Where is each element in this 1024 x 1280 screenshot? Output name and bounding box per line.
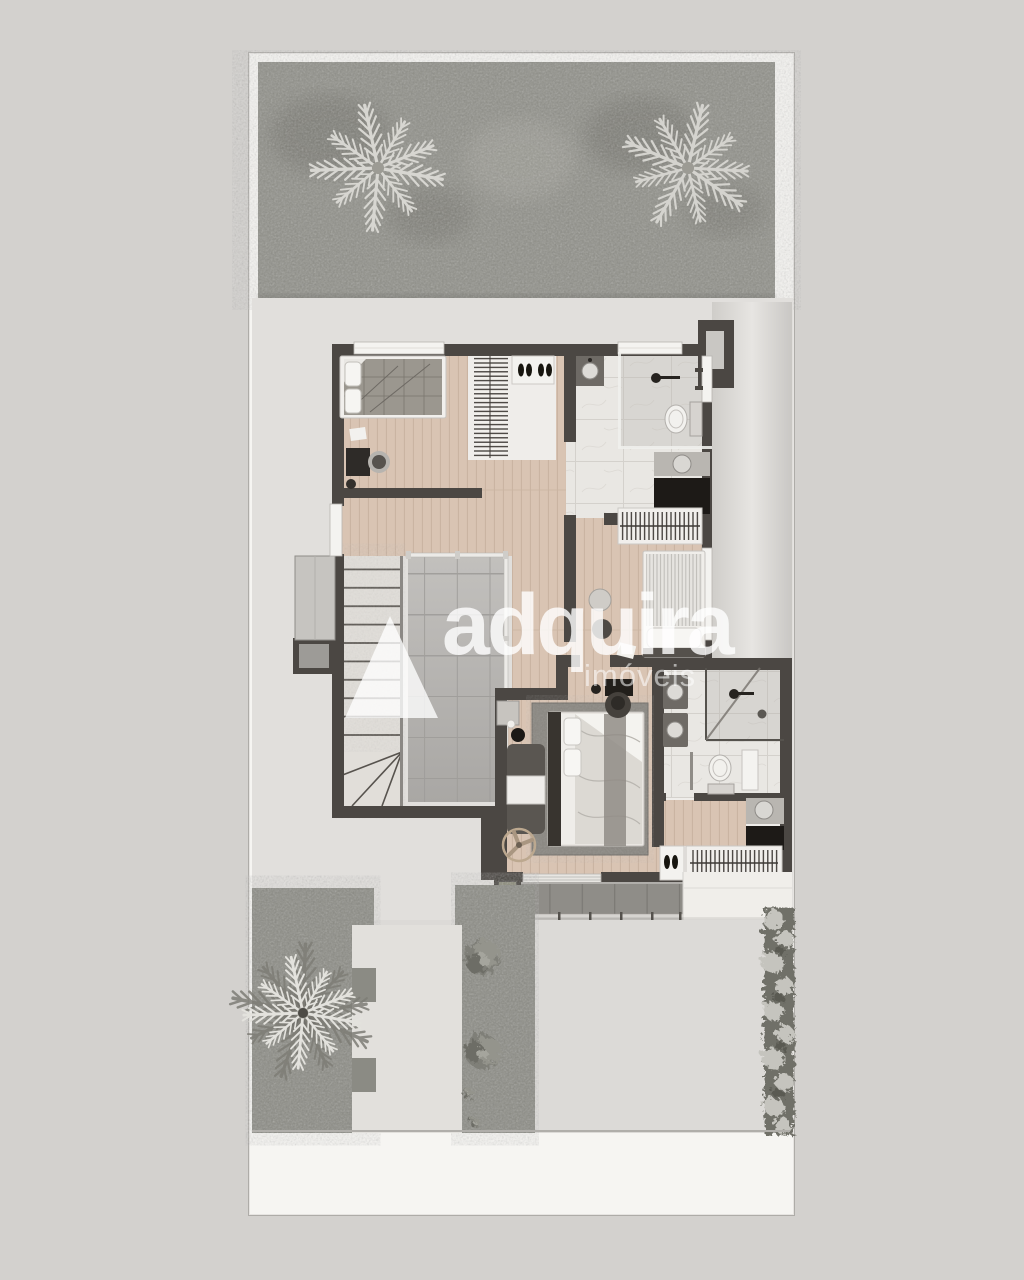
vanity-counter: [746, 798, 784, 850]
stepping-path: [352, 925, 462, 1133]
towel-rail: [690, 752, 693, 790]
stair-bay-window: [295, 556, 335, 640]
desk: [346, 448, 370, 476]
bench: [507, 744, 545, 834]
shower-glass: [618, 352, 621, 448]
side-table: [511, 728, 525, 742]
pillow: [345, 389, 361, 413]
skylight-void: [406, 551, 509, 802]
shrub-icon: [467, 1115, 477, 1125]
bed: [548, 712, 644, 846]
lamp: [507, 720, 515, 728]
paper: [349, 427, 367, 441]
front-lawn: [258, 62, 777, 304]
throw-blanket: [604, 714, 626, 846]
table: [589, 589, 611, 611]
bed: [643, 551, 705, 657]
shower-head-icon: [651, 373, 661, 383]
floor-plan-render: adquira imóveis: [0, 0, 1024, 1280]
hedge: [759, 905, 792, 1133]
rear-garden: [215, 885, 793, 1133]
pillow: [564, 749, 581, 776]
shelf-niche: [742, 750, 758, 790]
stool: [346, 479, 356, 489]
sliding-door: [523, 874, 601, 883]
pillow: [564, 718, 581, 745]
shower-head-icon: [729, 689, 739, 699]
shrub-icon: [462, 938, 497, 973]
drain: [758, 710, 767, 719]
stool: [591, 684, 601, 694]
staircase: [338, 556, 403, 806]
bay-box-inset: [299, 644, 329, 668]
shrub-icon: [460, 1086, 471, 1097]
plan-drawing: [0, 0, 1024, 1280]
stool: [592, 619, 612, 639]
pillow: [345, 362, 361, 386]
deck: [521, 882, 683, 916]
corridor-floor: [340, 494, 566, 556]
shoe-shelf: [660, 846, 684, 880]
shower-2-zone: [706, 668, 784, 742]
vanity-counter: [654, 452, 710, 514]
clothes-rack: [474, 356, 508, 458]
